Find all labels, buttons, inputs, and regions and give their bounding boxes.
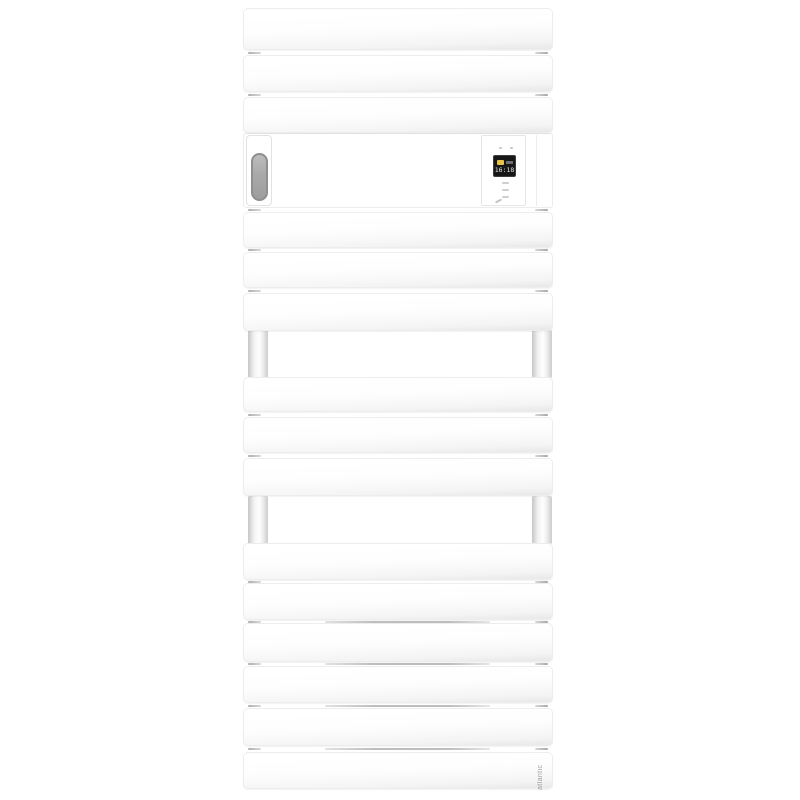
slat-gap-shadow bbox=[325, 663, 490, 665]
radiator-slat bbox=[243, 623, 553, 662]
hanger-bracket-mark bbox=[248, 94, 261, 96]
display-time: 16:18 bbox=[494, 166, 515, 175]
hanger-bracket-mark bbox=[535, 209, 548, 211]
control-unit: 16:18 bbox=[481, 135, 526, 206]
hanger-bracket-mark bbox=[535, 52, 548, 54]
hanger-bracket-mark bbox=[535, 455, 548, 457]
indicator-dot bbox=[510, 147, 513, 149]
display-segment bbox=[506, 161, 513, 164]
hanger-slot bbox=[246, 135, 272, 206]
right-tube-upper bbox=[532, 330, 552, 378]
hanger-bracket-mark bbox=[535, 414, 548, 416]
slat-gap-shadow bbox=[325, 748, 490, 750]
hanger-bracket-mark bbox=[535, 621, 548, 623]
radiator-slat bbox=[243, 377, 553, 412]
radiator-slat bbox=[243, 417, 553, 453]
hanger-bracket-mark bbox=[535, 249, 548, 251]
radiator-slat bbox=[243, 543, 553, 580]
radiator-slat bbox=[243, 293, 553, 331]
hanger-bracket-mark bbox=[535, 290, 548, 292]
comfort-mode-icon bbox=[497, 160, 504, 165]
indicator-dot bbox=[499, 147, 502, 149]
hanger-bracket-mark bbox=[535, 705, 548, 707]
radiator-slat bbox=[243, 752, 553, 789]
hanger-bracket-mark bbox=[535, 748, 548, 750]
hanger-bracket-mark bbox=[248, 621, 261, 623]
radiator-slat bbox=[243, 708, 553, 746]
radiator-slat bbox=[243, 8, 553, 50]
hanger-bracket-mark bbox=[248, 581, 261, 583]
radiator-slat bbox=[243, 97, 553, 133]
radiator-slat bbox=[243, 458, 553, 496]
hanger-bracket-mark bbox=[248, 663, 261, 665]
hanger-bracket-mark bbox=[248, 290, 261, 292]
touch-button-mark bbox=[502, 182, 509, 184]
radiator-slat bbox=[243, 55, 553, 92]
hanger-bracket-mark bbox=[248, 52, 261, 54]
hanger-bracket-mark bbox=[248, 414, 261, 416]
touch-button-check-mark bbox=[495, 198, 502, 203]
touch-button-mark bbox=[502, 196, 509, 198]
brand-logo-text: atlantic bbox=[536, 754, 546, 790]
hanger-bracket-mark bbox=[248, 705, 261, 707]
hanger-bracket-mark bbox=[248, 209, 261, 211]
front-panel: 16:18 bbox=[243, 133, 553, 208]
radiator-slat bbox=[243, 252, 553, 288]
left-tube-lower bbox=[248, 496, 268, 544]
grey-capsule-handle bbox=[251, 153, 268, 201]
hanger-bracket-mark bbox=[248, 748, 261, 750]
slat-gap-shadow bbox=[325, 621, 490, 623]
towel-radiator: 16:18 atlantic bbox=[243, 8, 553, 789]
left-tube-upper bbox=[248, 330, 268, 378]
lcd-display: 16:18 bbox=[493, 155, 516, 177]
hanger-bracket-mark bbox=[535, 663, 548, 665]
radiator-slat bbox=[243, 212, 553, 248]
product-image: 16:18 atlantic bbox=[0, 0, 800, 800]
radiator-slat bbox=[243, 666, 553, 703]
radiator-slat bbox=[243, 583, 553, 620]
hanger-bracket-mark bbox=[248, 455, 261, 457]
panel-divider bbox=[536, 135, 537, 206]
hanger-bracket-mark bbox=[248, 249, 261, 251]
hanger-bracket-mark bbox=[535, 581, 548, 583]
slat-gap-shadow bbox=[325, 705, 490, 707]
hanger-bracket-mark bbox=[535, 94, 548, 96]
right-tube-lower bbox=[532, 496, 552, 544]
touch-button-mark bbox=[502, 189, 509, 191]
